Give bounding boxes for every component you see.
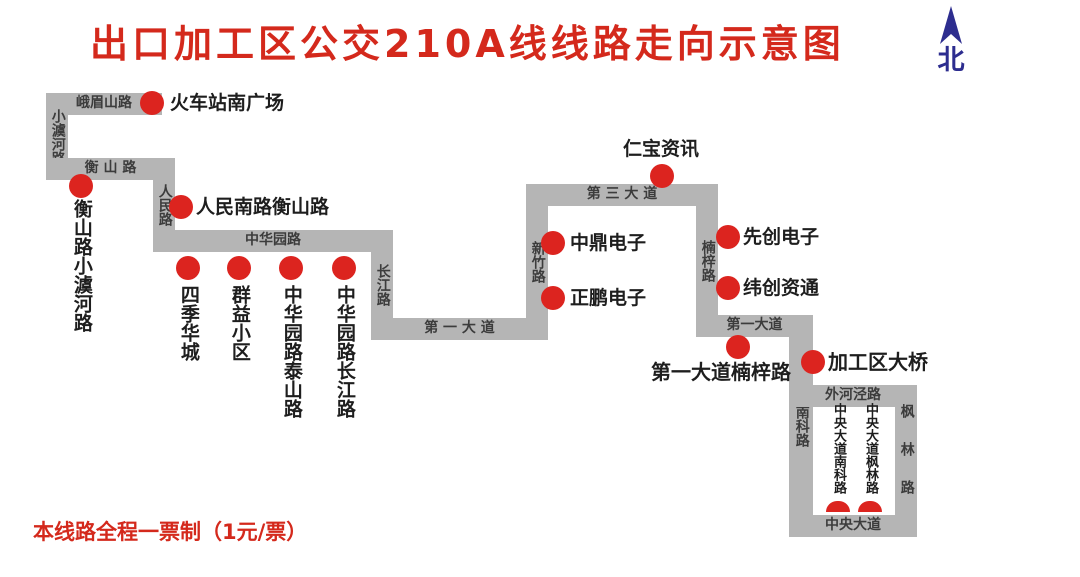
stop-dot-zhongding-dianzi: [541, 231, 565, 255]
stop-dot-renbao-zixun: [650, 164, 674, 188]
compass: 北: [930, 6, 972, 74]
road-label-nanzilu: 楠梓路: [699, 240, 714, 282]
stop-label-qunyixiaoqu: 群益小区: [228, 285, 250, 361]
road-label-fenglinlu: 枫林路: [898, 404, 913, 518]
stop-label-zhonghuayuanlu-taishanlu: 中华园路泰山路: [280, 285, 302, 418]
road-label-disandadao: 第 三 大 道: [587, 187, 658, 202]
notes: 本线路全程一票制（1元/票） 昆山市交通运输局 监督电话57552461 123…: [33, 461, 497, 577]
stop-dot-huochezhan-nan-guangchang: [140, 91, 164, 115]
stop-dot-diyidadao-nanzilu: [726, 335, 750, 359]
road-label-zhonghuayuanlu: 中华园路: [245, 233, 301, 248]
road-disandadao: 第 三 大 道: [526, 184, 718, 206]
road-label-waiheqinglu: 外河泾路: [825, 388, 881, 403]
road-label-emeishanlu: 峨眉山路: [76, 96, 132, 111]
stop-label-zhongyangdadao-fenglinlu: 中央大道枫林路: [862, 403, 877, 494]
stop-label-zhongyangdadao-nankelu: 中央大道南科路: [830, 403, 845, 494]
stop-label-jiagongqu-daqiao: 加工区大桥: [828, 351, 928, 374]
stop-dot-qunyixiaoqu: [227, 256, 251, 280]
road-zhonghuayuanlu: 中华园路: [153, 230, 393, 252]
stop-dot-xianchuang-dianzi: [716, 225, 740, 249]
road-label-hengshanlu: 衡 山 路: [85, 161, 137, 176]
stop-dot-zhongyangdadao-fenglinlu: [858, 501, 882, 512]
fare-note: 本线路全程一票制（1元/票）: [33, 518, 497, 546]
stop-label-zhongding-dianzi: 中鼎电子: [570, 233, 646, 255]
stop-dot-sijihuacheng: [176, 256, 200, 280]
stop-label-renminnanlu-hengshanlu: 人民南路衡山路: [196, 197, 329, 219]
stop-dot-jiagongqu-daqiao: [801, 350, 825, 374]
stop-label-sijihuacheng: 四季华城: [177, 285, 199, 361]
stop-dot-zhonghuayuanlu-taishanlu: [279, 256, 303, 280]
road-xinzhulu: 新竹路: [526, 184, 548, 340]
bus-route-diagram: 出口加工区公交210A线线路走向示意图 北 峨眉山路小澞河路衡 山 路人民路中华…: [0, 0, 1080, 577]
stop-dot-renminnanlu-hengshanlu: [169, 195, 193, 219]
stop-label-hengshanlu-xiaoyuhelu: 衡山路小澞河路: [70, 199, 92, 332]
road-label-diyidadao-east: 第一大道: [727, 318, 783, 333]
north-label: 北: [930, 47, 972, 74]
stop-dot-zhengpeng-dianzi: [541, 286, 565, 310]
stop-dot-zhonghuayuanlu-changjianglu: [332, 256, 356, 280]
road-diyidadao-west: 第 一 大 道: [371, 318, 548, 340]
road-nankelu: 南科路: [789, 315, 813, 537]
stop-label-diyidadao-nanzilu: 第一大道楠梓路: [651, 361, 791, 384]
road-label-nankelu: 南科路: [793, 405, 808, 447]
stop-dot-weichuang-zitong: [716, 276, 740, 300]
stop-label-huochezhan-nan-guangchang: 火车站南广场: [170, 93, 284, 115]
stop-dot-hengshanlu-xiaoyuhelu: [69, 174, 93, 198]
stop-label-zhonghuayuanlu-changjianglu: 中华园路长江路: [333, 285, 355, 418]
road-label-changjianglu: 长江路: [374, 264, 389, 306]
stop-label-zhengpeng-dianzi: 正鹏电子: [570, 288, 646, 310]
road-label-diyidadao-west: 第 一 大 道: [424, 321, 495, 336]
stop-label-renbao-zixun: 仁宝资讯: [623, 139, 699, 161]
stop-label-xianchuang-dianzi: 先创电子: [743, 227, 819, 249]
road-label-zhongyangdadao: 中央大道: [825, 518, 881, 533]
road-label-xiaoyuhelu: 小澞河路: [49, 109, 64, 165]
road-zhongyangdadao: 中央大道: [789, 515, 917, 537]
stop-label-weichuang-zitong: 纬创资通: [743, 278, 819, 300]
page-title: 出口加工区公交210A线线路走向示意图: [90, 13, 845, 68]
stop-dot-zhongyangdadao-nankelu: [826, 501, 850, 512]
north-arrow-icon: [938, 6, 964, 46]
